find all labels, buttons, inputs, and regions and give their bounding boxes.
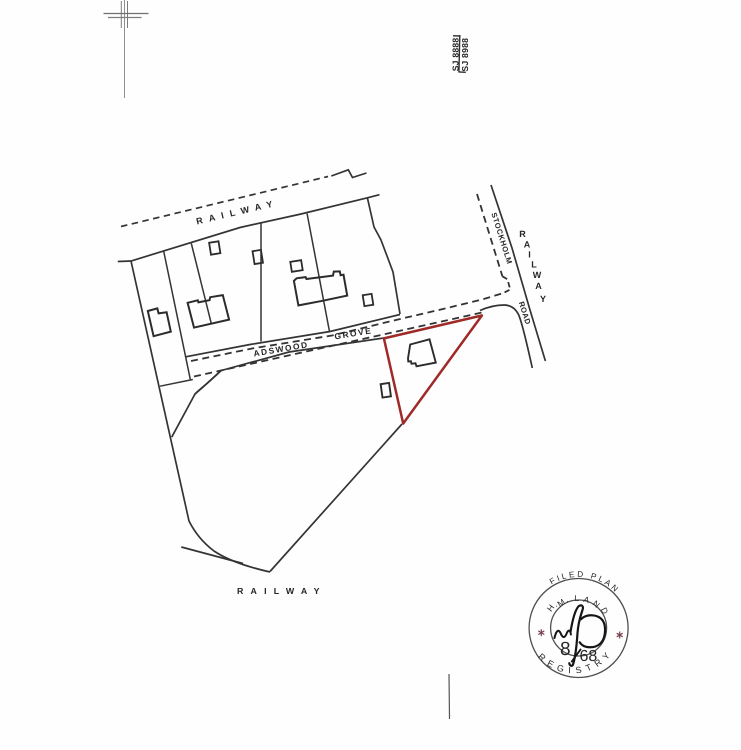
svg-text:8: 8 (560, 639, 571, 660)
svg-text:W: W (533, 270, 542, 280)
svg-text:SJ 8988: SJ 8988 (460, 38, 470, 72)
svg-text:I: I (528, 250, 531, 260)
svg-text:68: 68 (580, 648, 598, 665)
svg-text:A: A (524, 240, 531, 250)
svg-text:A: A (535, 281, 542, 291)
svg-text:SJ 8888: SJ 8888 (450, 38, 460, 72)
svg-text:R: R (519, 229, 526, 239)
svg-text:RAILWAY: RAILWAY (237, 586, 327, 596)
svg-text:Y: Y (540, 294, 546, 304)
svg-text:L: L (574, 593, 579, 603)
svg-text:L: L (531, 260, 537, 270)
